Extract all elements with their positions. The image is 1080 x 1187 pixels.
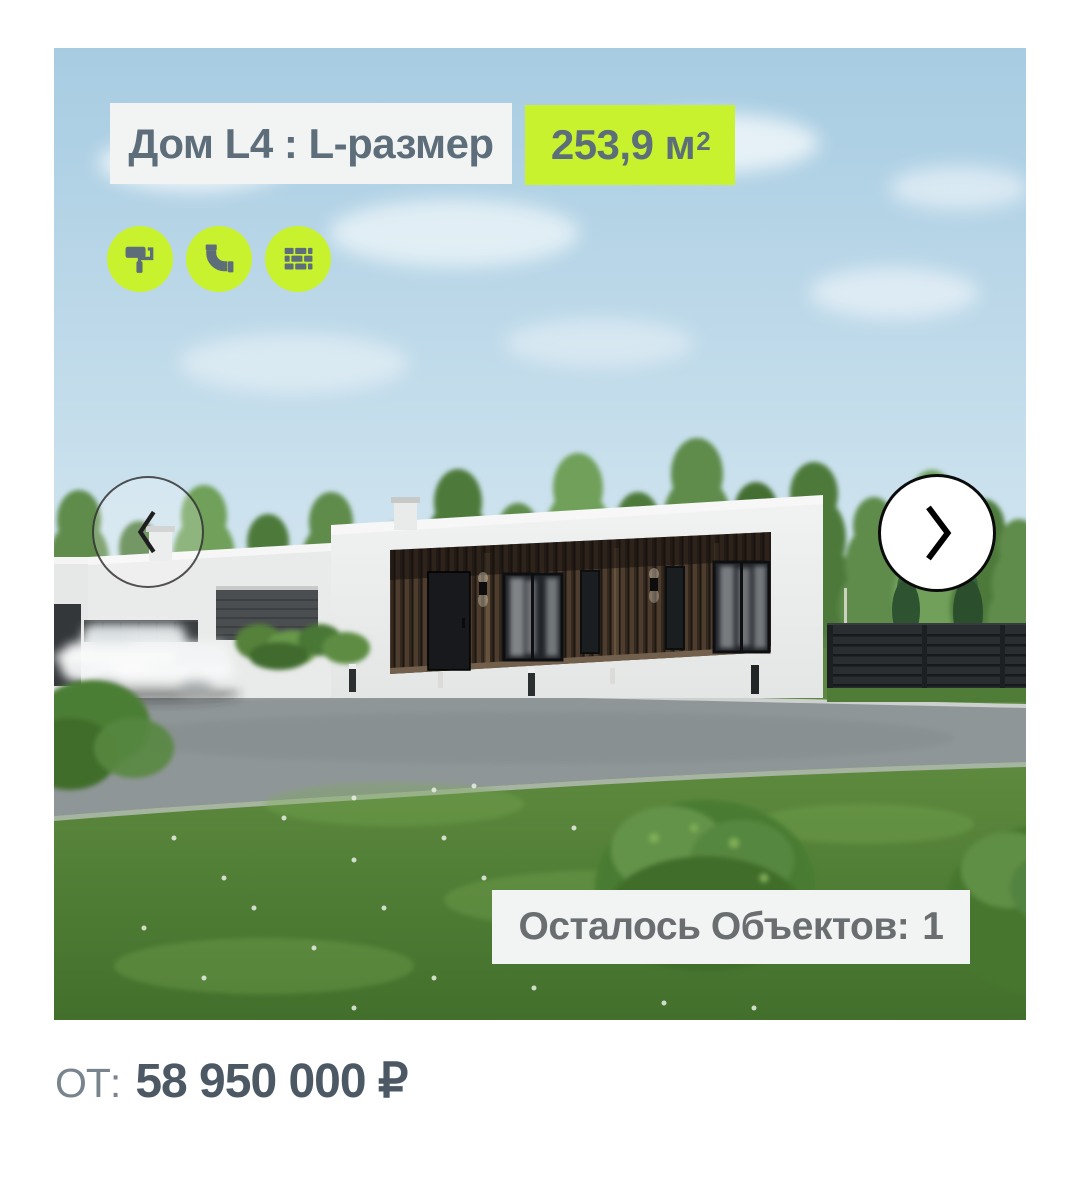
area-badge: 253,9 м2 xyxy=(525,105,735,185)
prev-slide-button[interactable] xyxy=(92,476,204,588)
price-row: ОТ: 58 950 000 ₽ xyxy=(55,1053,407,1109)
next-slide-button[interactable] xyxy=(878,474,996,592)
remaining-value: 1 xyxy=(922,905,943,949)
listing-photo-slide: Дом L4 : L-размер 253,9 м2 xyxy=(54,48,1026,1020)
remaining-objects-badge: Осталось Объектов: 1 xyxy=(492,890,970,964)
bricks-icon xyxy=(278,239,318,279)
feature-paint-button[interactable] xyxy=(107,226,173,292)
feature-icons-row xyxy=(107,226,331,292)
paint-roller-icon xyxy=(120,239,160,279)
house-title-badge: Дом L4 : L-размер xyxy=(110,103,512,184)
pipe-icon xyxy=(199,239,239,279)
area-value: 253,9 м xyxy=(551,121,695,169)
house-title: Дом L4 : L-размер xyxy=(128,120,493,168)
feature-plumbing-button[interactable] xyxy=(186,226,252,292)
chevron-right-icon xyxy=(915,501,959,565)
feature-brick-button[interactable] xyxy=(265,226,331,292)
area-sup: 2 xyxy=(696,126,710,157)
chevron-left-icon xyxy=(129,503,167,561)
price-prefix: ОТ: xyxy=(55,1060,120,1107)
listing-card: Дом L4 : L-размер 253,9 м2 xyxy=(0,0,1080,1187)
price-amount: 58 950 000 ₽ xyxy=(135,1053,407,1109)
remaining-label: Осталось Объектов: xyxy=(518,905,909,949)
